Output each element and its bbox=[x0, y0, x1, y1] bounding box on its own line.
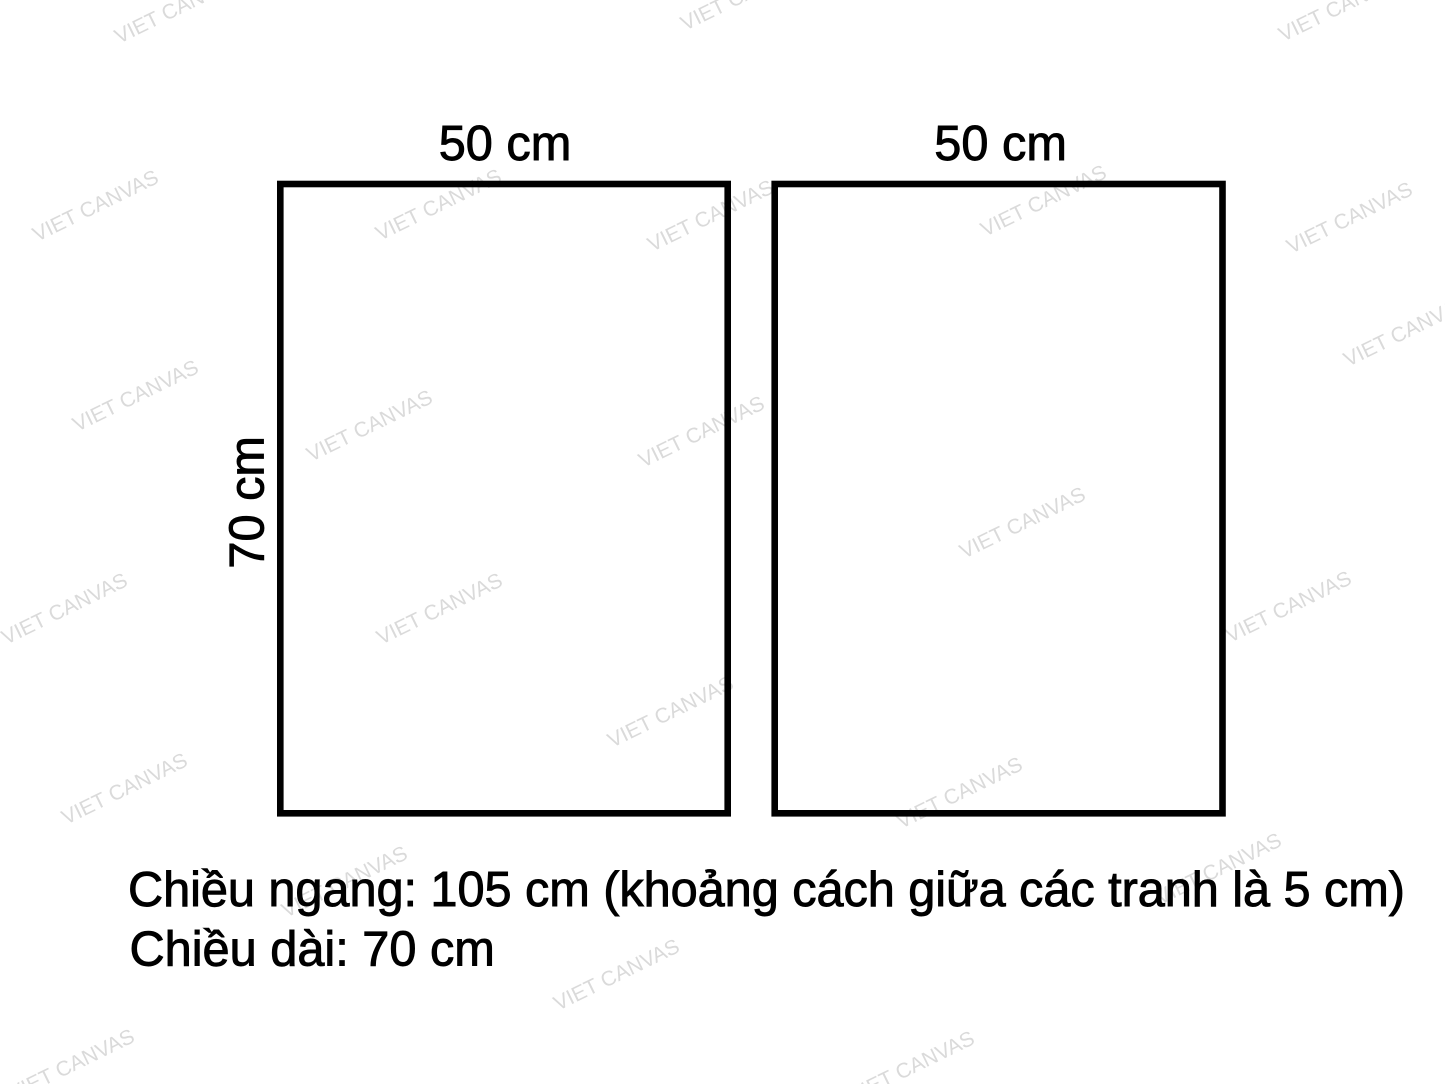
svg-text:Chiều ngang: 105 cm (khoảng cá: Chiều ngang: 105 cm (khoảng cách giữa cá… bbox=[128, 863, 1405, 917]
svg-text:50 cm: 50 cm bbox=[439, 117, 572, 171]
svg-text:VIET CANVAS: VIET CANVAS bbox=[0, 569, 131, 650]
svg-text:VIET CANVAS: VIET CANVAS bbox=[635, 392, 768, 473]
svg-text:VIET CANVAS: VIET CANVAS bbox=[372, 165, 505, 246]
svg-text:VIET CANVAS: VIET CANVAS bbox=[5, 1025, 138, 1084]
svg-text:VIET CANVAS: VIET CANVAS bbox=[303, 386, 436, 467]
svg-text:VIET CANVAS: VIET CANVAS bbox=[1283, 178, 1416, 259]
svg-text:Chiều dài: 70 cm: Chiều dài: 70 cm bbox=[130, 922, 495, 976]
svg-text:VIET CANVAS: VIET CANVAS bbox=[956, 483, 1089, 564]
svg-text:VIET CANVAS: VIET CANVAS bbox=[845, 1027, 978, 1084]
svg-text:VIET CANVAS: VIET CANVAS bbox=[1275, 0, 1408, 46]
svg-text:VIET CANVAS: VIET CANVAS bbox=[29, 166, 162, 247]
svg-text:VIET CANVAS: VIET CANVAS bbox=[1222, 567, 1355, 648]
svg-text:VIET CANVAS: VIET CANVAS bbox=[977, 161, 1110, 242]
svg-text:VIET CANVAS: VIET CANVAS bbox=[893, 753, 1026, 834]
svg-text:70 cm: 70 cm bbox=[220, 436, 274, 569]
svg-text:VIET CANVAS: VIET CANVAS bbox=[111, 0, 244, 48]
svg-text:VIET CANVAS: VIET CANVAS bbox=[69, 356, 202, 437]
svg-text:VIET CANVAS: VIET CANVAS bbox=[677, 0, 810, 35]
svg-text:50 cm: 50 cm bbox=[934, 117, 1067, 171]
svg-text:VIET CANVAS: VIET CANVAS bbox=[373, 569, 506, 650]
svg-text:VIET CANVAS: VIET CANVAS bbox=[1340, 291, 1445, 372]
svg-text:VIET CANVAS: VIET CANVAS bbox=[604, 672, 737, 753]
svg-text:VIET CANVAS: VIET CANVAS bbox=[550, 935, 683, 1016]
svg-text:VIET CANVAS: VIET CANVAS bbox=[58, 749, 191, 830]
svg-text:VIET CANVAS: VIET CANVAS bbox=[644, 176, 777, 257]
